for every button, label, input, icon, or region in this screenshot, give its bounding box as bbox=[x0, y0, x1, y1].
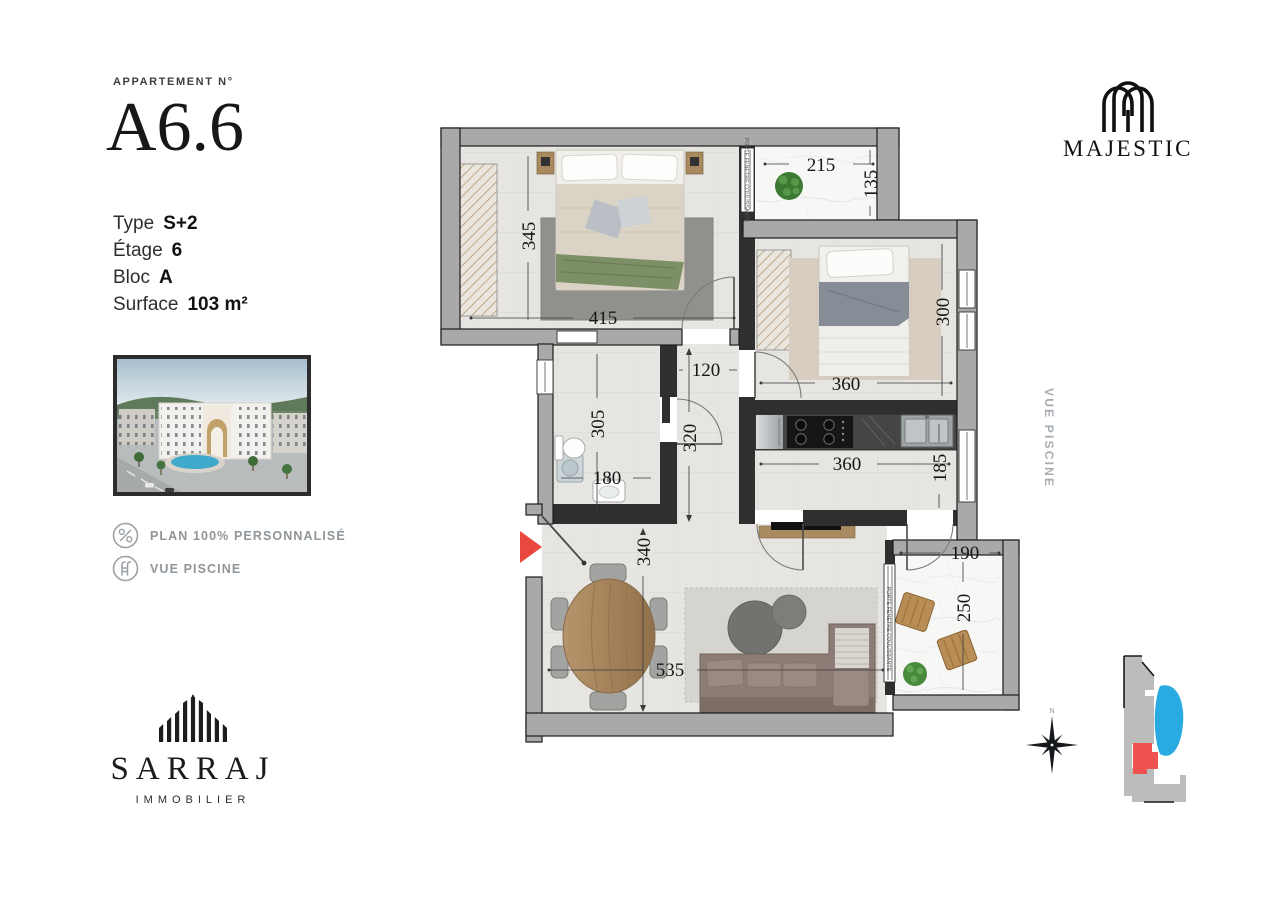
detail-row-surface: Surface103 m² bbox=[113, 291, 248, 318]
dim-hall-width: 120 bbox=[692, 360, 721, 381]
dim-bedroom1-width: 415 bbox=[589, 308, 618, 329]
feature-plan-personnalise: PLAN 100% PERSONNALISÉ bbox=[112, 519, 346, 552]
bedroom2-furniture bbox=[789, 246, 941, 380]
coffee-table bbox=[772, 595, 806, 629]
feature-label: VUE PISCINE bbox=[150, 562, 241, 576]
building-photo-art bbox=[117, 359, 307, 492]
kitchen-counter bbox=[755, 414, 957, 450]
detail-label: Surface bbox=[113, 294, 178, 315]
dim-bedroom2-width: 360 bbox=[832, 374, 861, 395]
floor-plan: 345 415 215 135 300 360 120 320 305 180 … bbox=[437, 112, 1037, 767]
stove bbox=[787, 416, 853, 448]
detail-value: S+2 bbox=[163, 213, 197, 234]
dim-hall-height: 320 bbox=[680, 424, 701, 453]
dim-kitchen-height: 185 bbox=[930, 454, 951, 483]
dim-bathroom-height: 305 bbox=[588, 410, 609, 439]
brochure-page: APPARTEMENT N° A6.6 TypeS+2 Étage6 BlocA… bbox=[0, 0, 1280, 910]
detail-label: Étage bbox=[113, 240, 163, 261]
plant bbox=[775, 172, 803, 200]
dim-balcony-top-width: 215 bbox=[807, 155, 836, 176]
apartment-label: APPARTEMENT N° bbox=[113, 76, 234, 88]
detail-value: 103 m² bbox=[187, 294, 247, 315]
site-unit-highlight bbox=[1133, 743, 1158, 774]
project-name: MAJESTIC bbox=[1058, 136, 1198, 162]
dim-bathroom-width: 180 bbox=[593, 468, 622, 489]
feature-list: PLAN 100% PERSONNALISÉ VUE PISCINE bbox=[112, 519, 346, 585]
site-map bbox=[1100, 648, 1198, 826]
apartment-details: TypeS+2 Étage6 BlocA Surface103 m² bbox=[113, 210, 248, 318]
brand-name: SARRAJ bbox=[103, 751, 283, 788]
detail-label: Type bbox=[113, 213, 154, 234]
dim-living-height: 340 bbox=[634, 538, 655, 567]
project-logo: MAJESTIC bbox=[1058, 78, 1198, 162]
plant bbox=[903, 662, 927, 686]
photo-pool bbox=[171, 455, 219, 469]
sliding-door-label-bottom: PORTE FENETRE COULISSANTE bbox=[885, 587, 891, 672]
pool-ladder-icon bbox=[112, 555, 139, 582]
bedroom2-wardrobe bbox=[757, 250, 791, 350]
detail-value: 6 bbox=[172, 240, 183, 261]
dim-balcony-bottom-width: 190 bbox=[951, 543, 980, 564]
sliding-door-label-top: PORTE FENETRE COULISSANTE bbox=[743, 138, 749, 223]
brand-subtitle: IMMOBILIER bbox=[103, 794, 283, 806]
radiator bbox=[662, 387, 670, 423]
building-photo bbox=[113, 355, 311, 496]
dim-balcony-bottom-height: 250 bbox=[954, 594, 975, 623]
detail-value: A bbox=[159, 267, 173, 288]
dim-living-width: 535 bbox=[656, 660, 685, 681]
bedroom1-wardrobe bbox=[460, 164, 497, 316]
compass-north-label: N bbox=[1049, 708, 1054, 715]
dim-bedroom2-height: 300 bbox=[933, 298, 954, 327]
toilet bbox=[555, 436, 563, 460]
towers-icon bbox=[155, 690, 231, 742]
feature-label: PLAN 100% PERSONNALISÉ bbox=[150, 529, 346, 543]
arches-icon bbox=[1096, 78, 1160, 134]
brand-logo: SARRAJ IMMOBILIER bbox=[103, 690, 283, 806]
detail-label: Bloc bbox=[113, 267, 150, 288]
feature-vue-piscine: VUE PISCINE bbox=[112, 552, 346, 585]
detail-row-bloc: BlocA bbox=[113, 264, 248, 291]
percent-icon bbox=[112, 522, 139, 549]
entry-arrow bbox=[520, 531, 542, 563]
side-label-vue-piscine: VUE PISCINE bbox=[1042, 388, 1056, 488]
apartment-number: A6.6 bbox=[106, 88, 244, 168]
dim-balcony-top-height: 135 bbox=[861, 170, 882, 199]
site-pool bbox=[1155, 685, 1184, 756]
dim-kitchen-width: 360 bbox=[833, 454, 862, 475]
detail-row-type: TypeS+2 bbox=[113, 210, 248, 237]
dim-bedroom1-height: 345 bbox=[519, 222, 540, 251]
detail-row-etage: Étage6 bbox=[113, 237, 248, 264]
